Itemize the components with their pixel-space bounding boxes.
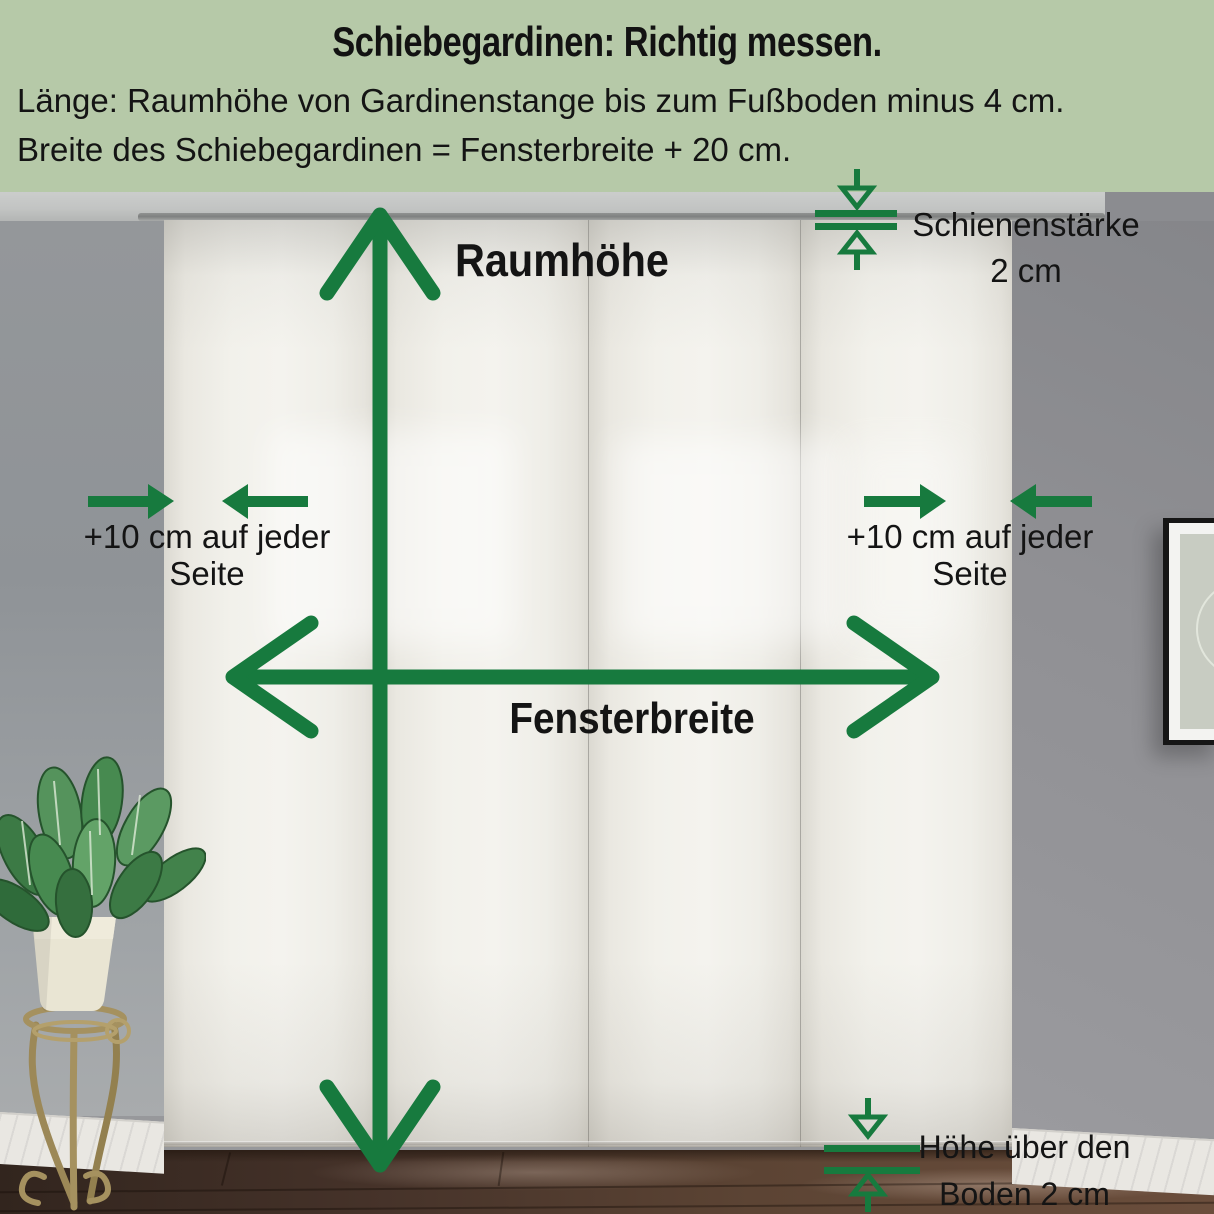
curtain-shadow xyxy=(150,1150,1020,1162)
plant-leaves xyxy=(0,755,206,941)
right-margin-line2: Seite xyxy=(932,555,1007,592)
window-width-label: Fensterbreite xyxy=(474,694,791,744)
sliding-curtain-panels xyxy=(164,220,1012,1147)
instruction-width: Breite des Schiebegardinen = Fensterbrei… xyxy=(17,131,791,169)
instruction-length: Länge: Raumhöhe von Gardinenstange bis z… xyxy=(17,82,1064,120)
header-band: Schiebegardinen: Richtig messen. Länge: … xyxy=(0,0,1214,192)
frame-artwork xyxy=(1180,534,1214,729)
curtain-panel xyxy=(375,220,587,1147)
floor-clearance-line1: Höhe über den xyxy=(919,1129,1131,1165)
left-margin-line2: Seite xyxy=(169,555,244,592)
right-margin-line1: +10 cm auf jeder xyxy=(847,518,1094,555)
right-margin-label: +10 cm auf jeder Seite xyxy=(820,518,1120,592)
page-title: Schiebegardinen: Richtig messen. xyxy=(109,18,1104,66)
left-margin-label: +10 cm auf jeder Seite xyxy=(57,518,357,592)
measurement-infographic: Schiebegardinen: Richtig messen. Länge: … xyxy=(0,0,1214,1214)
left-margin-line1: +10 cm auf jeder xyxy=(84,518,331,555)
potted-plant xyxy=(0,735,206,1214)
floor-clearance-label: Höhe über den Boden 2 cm xyxy=(892,1124,1157,1214)
window-reflection xyxy=(614,438,844,643)
floor-clearance-line2: Boden 2 cm xyxy=(939,1176,1110,1212)
curtain-panel xyxy=(800,220,1012,1147)
picture-frame xyxy=(1163,518,1214,745)
rail-thickness-line2: 2 cm xyxy=(990,252,1062,289)
curtain-panel xyxy=(588,220,800,1147)
rail-thickness-line1: Schienenstärke xyxy=(912,206,1139,243)
rail-thickness-label: Schienenstärke 2 cm xyxy=(897,202,1155,294)
room-height-label: Raumhöhe xyxy=(455,233,669,287)
plant-stand xyxy=(22,1007,129,1207)
